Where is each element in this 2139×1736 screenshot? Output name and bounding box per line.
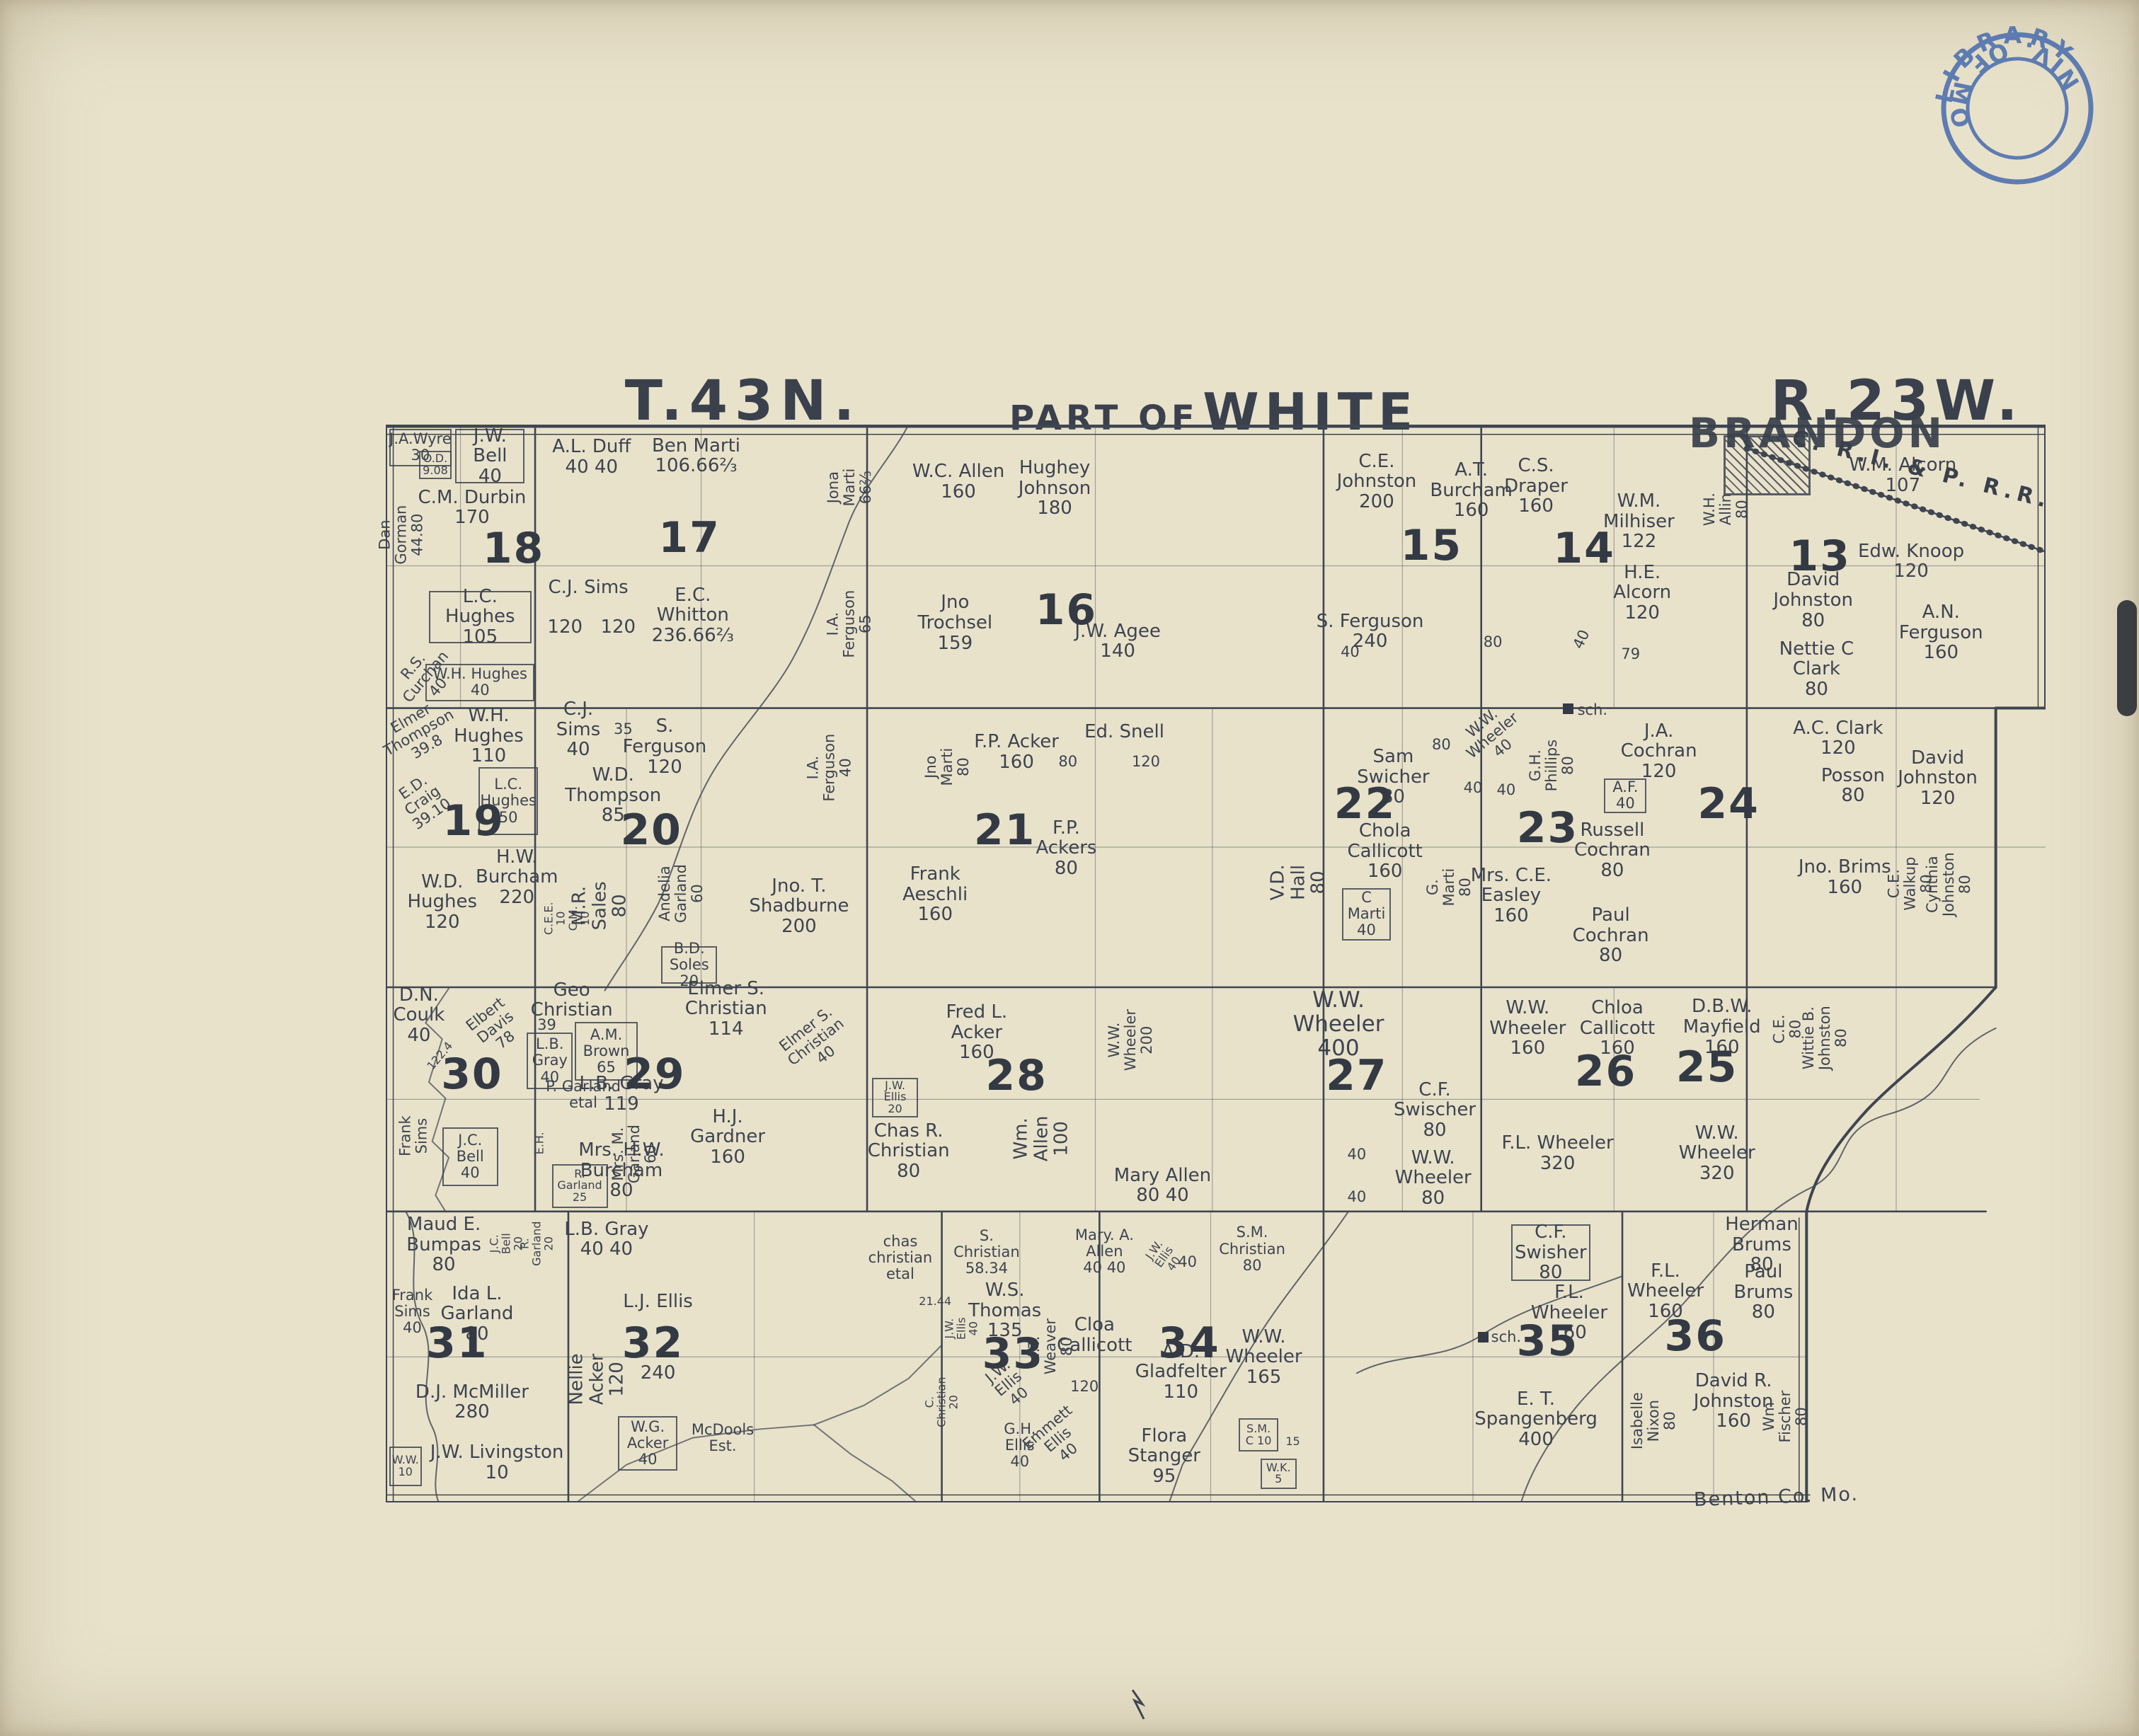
section-number: 28 (985, 1051, 1048, 1100)
stamp-text-bottom: UNIV. OF MO. (1905, 0, 2089, 147)
parcel-label: Edw. Knoop 120 (1853, 539, 1969, 584)
parcel-text: W.K. 5 (1266, 1462, 1291, 1486)
parcel-text: 120 (600, 617, 636, 638)
parcel-label: 80 (1474, 631, 1511, 653)
parcel-text: S. Ferguson 240 (1317, 611, 1424, 652)
parcel-label: I.A. Ferguson 40 (814, 713, 846, 821)
parcel-text: Chas R. Christian 80 (868, 1121, 950, 1182)
parcel-text: Wm. Allen 100 (1011, 1116, 1072, 1162)
parcel-text: Chola Callicott 160 (1347, 821, 1422, 882)
parcel-label: J.W. Ellis 20 (872, 1078, 918, 1117)
parcel-label: Jno. Brims 160 (1794, 856, 1896, 899)
parcel-label: 40 (1458, 778, 1488, 798)
parcel-label: C.E. 80 (1773, 991, 1801, 1067)
parcel-text: 79 (1621, 646, 1640, 662)
parcel-label: F.P. Acker 160 (970, 731, 1062, 774)
parcel-text: I.A. Ferguson 40 (805, 733, 854, 801)
parcel-label: W.H. Allin 80 (1710, 453, 1742, 566)
section-number: 24 (1697, 779, 1760, 829)
parcel-text: O.D. 9.08 (423, 453, 448, 477)
parcel-text: Geo Christian (519, 980, 625, 1021)
parcel-label: F.L. Wheeler 320 (1494, 1132, 1620, 1175)
parcel-label: 120 (545, 616, 585, 638)
section-number: 32 (622, 1318, 684, 1368)
parcel-label: Maud E. Bumpas 80 (399, 1220, 489, 1270)
parcel-label: W.W. Wheeler 320 (1654, 1134, 1780, 1173)
svg-text:UNIV. OF MO.: UNIV. OF MO. (1905, 0, 2089, 147)
parcel-text: W.H. Allin 80 (1702, 493, 1750, 526)
parcel-text: E.H. (534, 1132, 546, 1155)
parcel-label: S. Ferguson 240 (1314, 608, 1426, 655)
parcel-label: Frank Aeschli 160 (887, 858, 983, 931)
parcel-label: Chas R. Christian 80 (872, 1121, 945, 1181)
parcel-label: 120 (1130, 752, 1163, 771)
parcel-label: R. Garland 20 (524, 1218, 551, 1270)
parcel-label: Wm Fischer 80 (1767, 1362, 1805, 1470)
parcel-label: Ed. Snell (1077, 718, 1173, 746)
parcel-text: Mrs. H.W. Burcham 80 (578, 1140, 665, 1201)
parcel-text: Jno. Brims 160 (1799, 857, 1891, 897)
parcel-label: Paul Cochran 80 (1568, 905, 1654, 965)
section-number: 34 (1158, 1318, 1220, 1368)
parcel-label: C.F. Swischer 80 (1395, 1082, 1475, 1138)
parcel-text: E. T. Spangenberg 400 (1458, 1389, 1614, 1450)
parcel-label: David Johnston 120 (1893, 744, 1983, 812)
parcel-text: Paul Brums 80 (1720, 1262, 1806, 1323)
parcel-text: chas christian etal (868, 1234, 933, 1282)
parcel-text: C Marti 40 (1348, 890, 1386, 938)
parcel-text: W.H. Hughes 110 (454, 706, 524, 766)
parcel-text: Wittie B. Johnston 80 (1800, 1006, 1849, 1070)
section-number: 20 (620, 805, 682, 855)
parcel-label: F.P. Ackers 80 (1030, 821, 1103, 875)
parcel-label: L.B. Gray 40 40 (558, 1222, 655, 1257)
parcel-label: C.F. Swisher 80 (1511, 1224, 1590, 1281)
parcel-text: 40 (1178, 1254, 1197, 1270)
parcel-text: C.E. Johnston 200 (1337, 452, 1417, 512)
parcel-label: Elmer Thompson 39.8 (389, 703, 449, 763)
parcel-label: chas christian etal (857, 1233, 944, 1282)
parcel-label: Jno Trochsel 159 (914, 586, 997, 660)
parcel-label: E. T. Spangenberg 400 (1458, 1401, 1614, 1438)
parcel-text: 40 (1464, 780, 1483, 796)
parcel-text: 80 (1484, 634, 1503, 650)
parcel-text: G.H. Phillips 80 (1527, 739, 1576, 791)
parcel-label: Mary Allen 80 40 (1109, 1168, 1215, 1203)
ink-blot (2117, 600, 2137, 716)
parcel-text: L.B. Gray 40 40 (564, 1219, 648, 1260)
parcel-label: Mary. A. Allen 40 40 (1063, 1231, 1146, 1272)
parcel-text: W.C. Allen 160 (912, 461, 1004, 502)
parcel-label: W.K. 5 (1261, 1459, 1297, 1490)
parcel-text: Maud E. Bumpas 80 (406, 1214, 481, 1275)
parcel-label: A.F. 40 (1604, 778, 1646, 814)
parcel-text: A.L. Duff 40 40 (552, 437, 631, 477)
parcel-text: 40 (1497, 782, 1516, 798)
section-number: 27 (1326, 1051, 1388, 1100)
parcel-label: Emmett Ellis 40 (1030, 1408, 1086, 1472)
parcel-text: Posson 80 (1821, 766, 1885, 806)
parcel-label: C.E.E. 10 (544, 884, 567, 953)
parcel-label: C.E. Johnston 200 (1330, 444, 1423, 519)
parcel-label: Frank Sims (396, 1071, 432, 1201)
parcel-text: Ed. Snell (1084, 722, 1164, 742)
parcel-label: sch. (1574, 701, 1611, 720)
parcel-text: Frank Aeschli 160 (902, 864, 968, 925)
parcel-text: W.G. Acker 40 (627, 1419, 669, 1468)
parcel-label: Elmer S. Christian 114 (681, 989, 771, 1028)
parcel-label: Paul Brums 80 (1720, 1276, 1806, 1309)
parcel-text: C.F. Swisher 80 (1515, 1222, 1587, 1283)
section-number: 25 (1676, 1042, 1738, 1092)
parcel-text: 120 (1070, 1379, 1099, 1395)
parcel-label: Geo Christian (519, 989, 625, 1011)
plat-map: J.A.Wyre 30O.D. 9.08J.W. Bell 40Dan Gorm… (386, 425, 2046, 1502)
section-number: 22 (1334, 779, 1397, 829)
parcel-text: 40 (1347, 1189, 1366, 1205)
parcel-text: Wm Fischer 80 (1761, 1390, 1810, 1442)
parcel-label: Ben Marti 106.66⅔ (641, 433, 751, 478)
parcel-text: Emmett Ellis 40 (1019, 1402, 1096, 1478)
parcel-text: F.L. Wheeler 320 (1501, 1133, 1613, 1173)
parcel-text: Jno. T. Shadburne 200 (749, 876, 849, 937)
parcel-label: W.W. 10 (389, 1447, 422, 1486)
parcel-label: C.E. Walkup 80 (1895, 830, 1927, 938)
parcel-text: L.C. Hughes 105 (430, 587, 530, 648)
parcel-text: Ben Marti 106.66⅔ (652, 436, 740, 476)
parcel-text: 39 (537, 1017, 556, 1033)
parcel-text: Jno Marti 80 (923, 748, 972, 786)
parcel-text: Andelia Garland 60 (657, 864, 706, 923)
parcel-label: Cynthia Johnston 80 (1929, 828, 1969, 941)
parcel-text: Hughey Johnson 180 (1019, 458, 1091, 519)
parcel-label: 39 (532, 1016, 561, 1035)
parcel-text: Jona Marti 66⅔ (825, 468, 874, 506)
section-number: 35 (1517, 1316, 1579, 1366)
parcel-label: 40 (1491, 781, 1521, 800)
parcel-label: H.J. Gardner 160 (678, 1101, 778, 1173)
parcel-label: Elmer S. Christian 40 (784, 1011, 847, 1074)
parcel-label: C.J. Sims (541, 573, 634, 602)
parcel-label: S.M. Christian 80 (1212, 1226, 1292, 1272)
parcel-label: A.C. Clark 120 (1783, 720, 1893, 757)
parcel-label: E.C. Whitton 236.66⅔ (638, 577, 747, 653)
parcel-label: 40 (1173, 1253, 1203, 1272)
parcel-label: Nettie C Clark 80 (1770, 638, 1863, 701)
parcel-label: S. Christian 58.34 (948, 1229, 1025, 1276)
parcel-text: W.W. Wheeler 165 (1225, 1327, 1302, 1388)
parcel-label: A.N. Ferguson 160 (1890, 593, 1992, 673)
parcel-text: 120 (547, 617, 583, 638)
library-stamp: LIBRARY UNIV. OF MO. (1905, 0, 2128, 220)
parcel-label: C.S. Draper 160 (1491, 449, 1581, 524)
parcel-label: Wittie B. Johnston 80 (1805, 989, 1845, 1086)
parcel-label: 15 (1280, 1434, 1305, 1450)
parcel-label: Cloa Callicott (1056, 1315, 1132, 1356)
parcel-text: Cynthia Johnston 80 (1925, 852, 1973, 916)
parcel-text: H.E. Alcorn 120 (1613, 563, 1671, 623)
parcel-text: S. Christian 58.34 (953, 1228, 1020, 1277)
stray-pen-mark (1118, 1684, 1161, 1736)
parcel-text: A.F. 40 (1612, 779, 1638, 812)
parcel-text: V.D. Hall 80 (1268, 864, 1329, 900)
parcel-text: W.W. Wheeler 320 (1654, 1123, 1780, 1184)
parcel-text: sch. (1578, 702, 1607, 718)
parcel-label: Nellie Acker 120 (580, 1294, 614, 1466)
parcel-label: J.C. Bell 40 (442, 1127, 498, 1186)
parcel-text: W.W. Wheeler 400 (1269, 988, 1409, 1060)
parcel-label: D.N. Coulk 40 (391, 994, 447, 1037)
parcel-label: Dan Gorman 44.80 (387, 483, 415, 586)
section-number: 15 (1401, 521, 1463, 570)
parcel-label: J.W. Bell 40 (455, 429, 524, 483)
parcel-label: Mrs. H.W. Burcham 80 (572, 1142, 672, 1198)
parcel-text: J.W. Livingston 10 (423, 1442, 572, 1483)
parcel-text: C.M. 10 (567, 906, 591, 931)
parcel-label: Andelia Garland 60 (660, 845, 703, 942)
parcel-label: L.C. Hughes 105 (429, 591, 532, 643)
parcel-label: W.G. Acker 40 (618, 1416, 677, 1471)
parcel-label: Jona Marti 66⅔ (834, 433, 866, 541)
parcel-text: Elmer S. Christian 40 (774, 1003, 856, 1082)
school-marker (1478, 1332, 1489, 1343)
parcel-label: Hughey Johnson 180 (1010, 453, 1100, 524)
parcel-text: A.N. Ferguson 160 (1899, 602, 1983, 663)
parcel-label: 40 (1342, 1144, 1372, 1163)
parcel-label: O.D. 9.08 (419, 451, 452, 480)
parcel-label: J.C. Bell 20 (493, 1218, 520, 1270)
parcel-text: C.F. Swischer 80 (1394, 1080, 1476, 1141)
parcel-text: C.E. 80 (1771, 1015, 1803, 1044)
parcel-text: 40 (1570, 627, 1593, 651)
parcel-text: Nellie Acker 120 (567, 1354, 628, 1406)
parcel-text: I.A. Ferguson 65 (825, 590, 874, 658)
parcel-text: S.M. C 10 (1246, 1423, 1272, 1447)
parcel-label: Jno. T. Shadburne 200 (745, 878, 854, 936)
section-number: 29 (624, 1050, 686, 1099)
section-number: 26 (1575, 1047, 1637, 1096)
parcel-label: D.J. McMiller 280 (406, 1379, 539, 1425)
parcel-text: F.P. Ackers 80 (1036, 818, 1096, 879)
parcel-text: 80 (1058, 754, 1077, 770)
section-number: 13 (1789, 531, 1851, 581)
section-number: 18 (483, 524, 545, 573)
parcel-label: 40 (1342, 1188, 1372, 1207)
parcel-label: C.J. Sims 40 (540, 711, 617, 748)
parcel-text: McDools Est. (692, 1422, 754, 1454)
parcel-text: F.P. Acker 160 (974, 732, 1059, 772)
parcel-text: Paul Cochran 80 (1573, 905, 1649, 966)
parcel-text: C.S. Draper 160 (1504, 456, 1568, 517)
parcel-text: J.C. Bell 40 (457, 1132, 484, 1181)
section-number: 36 (1664, 1311, 1726, 1361)
parcel-text: C.M. Durbin 170 (418, 488, 527, 528)
parcel-text: L.J. Ellis (623, 1292, 693, 1312)
parcel-label: L.J. Ellis (618, 1289, 698, 1315)
parcel-text: 15 (1285, 1436, 1300, 1448)
parcel-text: C.J. Sims (548, 577, 628, 598)
parcel-text: W.W. Wheeler 200 (1106, 1009, 1155, 1071)
section-number: 14 (1553, 524, 1615, 573)
parcel-text: Edw. Knoop 120 (1858, 541, 1964, 582)
parcel-text: W.W. 10 (392, 1454, 419, 1478)
school-marker (1563, 703, 1573, 714)
parcel-text: A.M. Brown 65 (583, 1027, 630, 1076)
parcel-text: R. Garland 20 (519, 1221, 554, 1266)
parcel-text: Cloa Callicott (1057, 1315, 1132, 1355)
parcel-label: W.W. Wheeler 160 (1488, 998, 1568, 1058)
parcel-label: A.L. Duff 40 40 (541, 435, 641, 478)
parcel-label: Posson 80 (1813, 769, 1893, 802)
parcel-label: W.H. Hughes 110 (445, 707, 532, 765)
parcel-text: Isabelle Nixon 80 (1629, 1392, 1678, 1449)
township-title: T.43N. (625, 369, 861, 433)
parcel-text: David Johnston 120 (1898, 748, 1978, 809)
parcel-label: J.A. Cochran 120 (1617, 720, 1700, 782)
parcel-text: D.J. McMiller 280 (415, 1382, 529, 1422)
parcel-label: 120 (1066, 1377, 1103, 1396)
parcel-text: Frank Sims (398, 1115, 430, 1156)
section-number: 21 (974, 805, 1036, 855)
parcel-text: E.C. Whitton 236.66⅔ (652, 585, 734, 646)
parcel-label: S.M. C 10 (1239, 1418, 1278, 1452)
parcel-label: W.W. Wheeler 80 (1395, 1149, 1472, 1207)
parcel-text: C.J. Sims 40 (540, 699, 617, 760)
parcel-label: Flora Stanger 95 (1109, 1440, 1219, 1473)
parcel-label: F.L. Wheeler 160 (1627, 1263, 1704, 1319)
parcel-label: W.W. Wheeler 200 (1113, 991, 1149, 1088)
parcel-label: Jno Marti 80 (932, 715, 964, 818)
section-number: 17 (658, 513, 721, 563)
parcel-text: 40 (1341, 644, 1360, 660)
section-number: 19 (443, 796, 505, 846)
parcel-text: J.W. Bell 40 (473, 426, 507, 487)
parcel-label: Isabelle Nixon 80 (1634, 1367, 1673, 1474)
parcel-label: C.M. 10 (568, 884, 590, 953)
parcel-text: C. Christian 20 (924, 1377, 959, 1427)
parcel-text: 120 (1132, 754, 1160, 770)
parcel-label: W.W. Wheeler 165 (1229, 1328, 1298, 1386)
parcel-label: I.A. Ferguson 65 (834, 570, 866, 678)
parcel-label: W.C. Allen 160 (910, 457, 1007, 507)
parcel-text: W.W. Wheeler 160 (1489, 998, 1566, 1059)
section-number: 30 (441, 1050, 503, 1099)
parcel-text: Jno Trochsel 159 (918, 592, 993, 653)
parcel-text: 40 (1347, 1146, 1366, 1163)
parcel-text: W.W. Wheeler 80 (1395, 1148, 1472, 1209)
parcel-text: Elmer S. Christian 114 (685, 979, 767, 1040)
parcel-label: Mrs. C.E. Easley 160 (1462, 862, 1561, 929)
parcel-label: W.W. Wheeler 40 (1462, 711, 1525, 761)
parcel-label: W.W. Wheeler 400 (1269, 1002, 1409, 1045)
parcel-text: Flora Stanger 95 (1109, 1426, 1219, 1487)
parcel-text: C.E.E. 10 (543, 902, 567, 935)
parcel-label: 40 (1568, 625, 1596, 653)
section-number: 31 (426, 1318, 488, 1368)
section-number: 33 (982, 1329, 1045, 1379)
parcel-text: Nettie C Clark 80 (1779, 639, 1854, 700)
parcel-label: J.W. Livingston 10 (423, 1449, 572, 1477)
parcel-label: Chola Callicott 160 (1338, 821, 1431, 881)
parcel-label: 79 (1614, 645, 1647, 664)
parcel-text: J.W. Ellis 20 (884, 1080, 907, 1115)
parcel-label: Russell Cochran 80 (1568, 821, 1658, 879)
parcel-label: 80 (1053, 752, 1083, 771)
section-number: 23 (1517, 803, 1579, 853)
parcel-text: Russell Cochran 80 (1574, 820, 1651, 881)
parcel-text: A.C. Clark 120 (1793, 718, 1883, 759)
road-line (814, 1425, 917, 1502)
parcel-text: D.N. Coulk 40 (393, 985, 445, 1046)
parcel-text: S.M. Christian 80 (1219, 1224, 1285, 1273)
parcel-text: W.H. Hughes 40 (433, 666, 527, 699)
section-number: 16 (1036, 585, 1098, 635)
parcel-label: E.H. (530, 1121, 550, 1166)
parcel-text: Mary. A. Allen 40 40 (1075, 1227, 1134, 1276)
parcel-label: 120 (598, 616, 638, 638)
county-note: Benton Co. Mo. (1693, 1483, 1859, 1511)
parcel-text: J.A. Cochran 120 (1621, 721, 1697, 782)
parcel-label: C Marti 40 (1342, 888, 1392, 941)
parcel-text: H.J. Gardner 160 (690, 1107, 765, 1168)
parcel-label: V.D. Hall 80 (1282, 826, 1315, 939)
parcel-label: 40 (1335, 643, 1365, 662)
parcel-label: McDools Est. (681, 1418, 764, 1457)
parcel-text: Mary Allen 80 40 (1114, 1166, 1211, 1206)
parcel-text: Mrs. C.E. Easley 160 (1471, 866, 1552, 926)
